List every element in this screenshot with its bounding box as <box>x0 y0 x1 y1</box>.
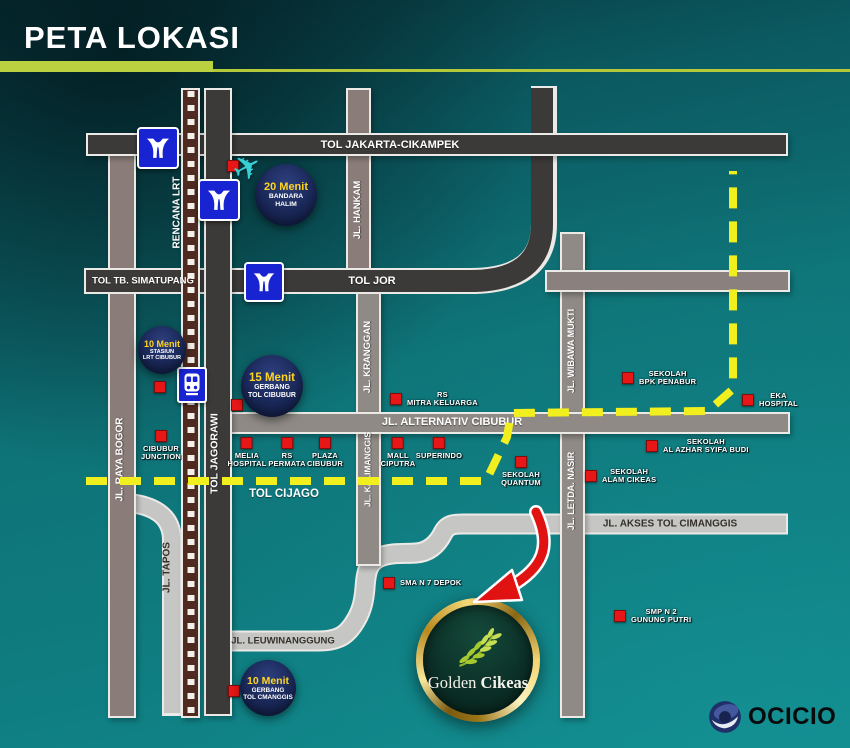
map-marker <box>622 372 634 384</box>
poi-sma-n-7-depok: SMA N 7 DEPOK <box>383 577 462 589</box>
poi-mall-ciputra: MALLCIPUTRA <box>381 437 416 469</box>
map-marker <box>515 456 527 468</box>
road-label-jl-hankam: JL. HANKAM <box>351 179 363 241</box>
road-label-rencana-lrt: RENCANA LRT <box>171 173 184 253</box>
time-badge-gerbang-tol-cimanggis: 10 Menit GERBANG TOL CMANGGIS <box>240 660 296 716</box>
badge-line2: LRT CIBUBUR <box>143 355 181 361</box>
badge-time: 20 Menit <box>264 181 308 193</box>
badge-line2: TOL CIBUBUR <box>248 392 296 400</box>
badge-line1: BANDARA <box>269 193 303 201</box>
badge-time: 10 Menit <box>247 675 289 687</box>
wordmark-cikeas: Cikeas <box>481 673 529 692</box>
map-marker <box>228 685 240 697</box>
poi-sekolah-quantum: SEKOLAHQUANTUM <box>501 456 541 488</box>
map-marker <box>231 399 243 411</box>
map-marker <box>614 610 626 622</box>
motorway-icon <box>198 179 240 221</box>
brand-footer: OCICIO <box>708 700 836 734</box>
road-label-tol-jor: TOL JOR <box>348 275 395 287</box>
map-marker <box>155 430 167 442</box>
poi-superindo: SUPERINDO <box>416 437 462 460</box>
poi-sekolah-al-azhar-syifa-budi: SEKOLAHAL AZHAR SYIFA BUDI <box>646 438 749 455</box>
road-label-jl-alternativ-cibubur: JL. ALTERNATIV CIBUBUR <box>382 416 522 428</box>
road-label-tol-cijago: TOL CIJAGO <box>249 488 319 500</box>
time-badge-bandara-halim: 20 Menit BANDARA HALIM <box>255 164 317 226</box>
poi-label: JUNCTION <box>141 453 181 461</box>
poi-label: SUPERINDO <box>416 452 462 460</box>
road-label-jl-tapos: JL. TAPOS <box>161 539 174 597</box>
poi-cibubur-junction: CIBUBURJUNCTION <box>141 430 181 462</box>
motorway-icon <box>244 262 284 302</box>
map-marker <box>383 577 395 589</box>
golden-cikeas-wordmark: Golden Cikeas <box>428 673 528 693</box>
road-label-tol-jakarta-cikampek: TOL JAKARTA-CIKAMPEK <box>321 139 460 151</box>
poi-label: BPK PENABUR <box>639 378 696 386</box>
location-map-poster: PETA LOKASI TOL JAKARTA-CIKAMPEK TOL TB.… <box>0 0 850 748</box>
road-tol-jor-east <box>545 270 790 292</box>
page-title: PETA LOKASI <box>24 20 240 56</box>
arrow-casing <box>508 512 544 588</box>
poi-label: HOSPITAL <box>759 400 798 408</box>
road-label-jl-letda-nasir: JL. LETDA. NASIR <box>565 447 577 535</box>
map-marker <box>319 437 331 449</box>
poi-label: GUNUNG PUTRI <box>631 616 691 624</box>
time-badge-gerbang-tol-cibubur: 15 Menit GERBANG TOL CIBUBUR <box>241 355 303 417</box>
golden-cikeas-inner: Golden Cikeas <box>423 605 533 715</box>
road-label-jl-kranggan: JL. KRANGGAN <box>361 319 373 395</box>
wordmark-golden: Golden <box>428 673 477 692</box>
road-label-jl-wibawa-mukti: JL. WIBAWA MUKTI <box>565 304 577 398</box>
brand-name: OCICIO <box>748 703 836 731</box>
poi-sekolah-bpk-penabur: SEKOLAHBPK PENABUR <box>622 370 696 387</box>
badge-line2: HALIM <box>275 201 297 209</box>
poi-label: SMA N 7 DEPOK <box>400 579 462 587</box>
poi-rs-permata: RSPERMATA <box>268 437 305 469</box>
golden-cikeas-landmark: Golden Cikeas <box>416 598 540 722</box>
poi-label: AL AZHAR SYIFA BUDI <box>663 446 749 454</box>
map-marker <box>742 394 754 406</box>
map-marker <box>281 437 293 449</box>
poi-label: CIPUTRA <box>381 460 416 468</box>
road-label-jl-leuwinanggung: JL. LEUWINANGGUNG <box>231 636 334 647</box>
motorway-icon <box>137 127 179 169</box>
map-marker <box>585 470 597 482</box>
map-marker <box>433 437 445 449</box>
poi-label: ALAM CIKEAS <box>602 476 656 484</box>
poi-label: QUANTUM <box>501 479 541 487</box>
map-marker <box>646 440 658 452</box>
map-marker <box>392 437 404 449</box>
road-label-jl-kalimanggis: JL. KALIMANGGIS <box>362 428 373 512</box>
poi-label: MITRA KELUARGA <box>407 399 478 407</box>
badge-line1: GERBANG <box>254 384 290 392</box>
poi-plaza-cibubur: PLAZACIBUBUR <box>307 437 343 469</box>
badge-time: 10 Menit <box>144 339 180 349</box>
time-badge-stasiun-lrt-cibubur: 10 Menit STASIUN LRT CIBUBUR <box>138 326 186 374</box>
road-label-tol-tb-simatupang: TOL TB. SIMATUPANG <box>92 276 194 287</box>
leaf-icon <box>452 627 504 671</box>
badge-line2: TOL CMANGGIS <box>243 694 292 701</box>
map-marker <box>154 381 166 393</box>
map-marker <box>241 437 253 449</box>
poi-label: CIBUBUR <box>307 460 343 468</box>
poi-melia-hospital: MELIAHOSPITAL <box>228 437 267 469</box>
train-station-icon <box>177 367 207 403</box>
badge-time: 15 Menit <box>249 372 295 384</box>
ocicio-logo-icon <box>708 700 742 734</box>
poi-label: PERMATA <box>268 460 305 468</box>
map-marker <box>390 393 402 405</box>
poi-label: HOSPITAL <box>228 460 267 468</box>
poi-sekolah-alam-cikeas: SEKOLAHALAM CIKEAS <box>585 468 656 485</box>
poi-eka-hospital: EKAHOSPITAL <box>742 392 798 409</box>
road-label-jl-raya-bogor: JL. RAYA BOGOR <box>114 416 127 504</box>
accent-bar <box>0 61 213 72</box>
poi-smp-n-2-gunung-putri: SMP N 2GUNUNG PUTRI <box>614 608 691 625</box>
accent-line <box>213 69 850 72</box>
arrow-shaft <box>508 512 544 588</box>
road-label-tol-jagorawi: TOL JAGORAWI <box>208 405 221 503</box>
road-label-jl-akses-tol-cimanggis: JL. AKSES TOL CIMANGGIS <box>603 519 737 530</box>
badge-line1: GERBANG <box>252 687 285 694</box>
poi-rs-mitra-keluarga: RSMITRA KELUARGA <box>390 391 478 408</box>
